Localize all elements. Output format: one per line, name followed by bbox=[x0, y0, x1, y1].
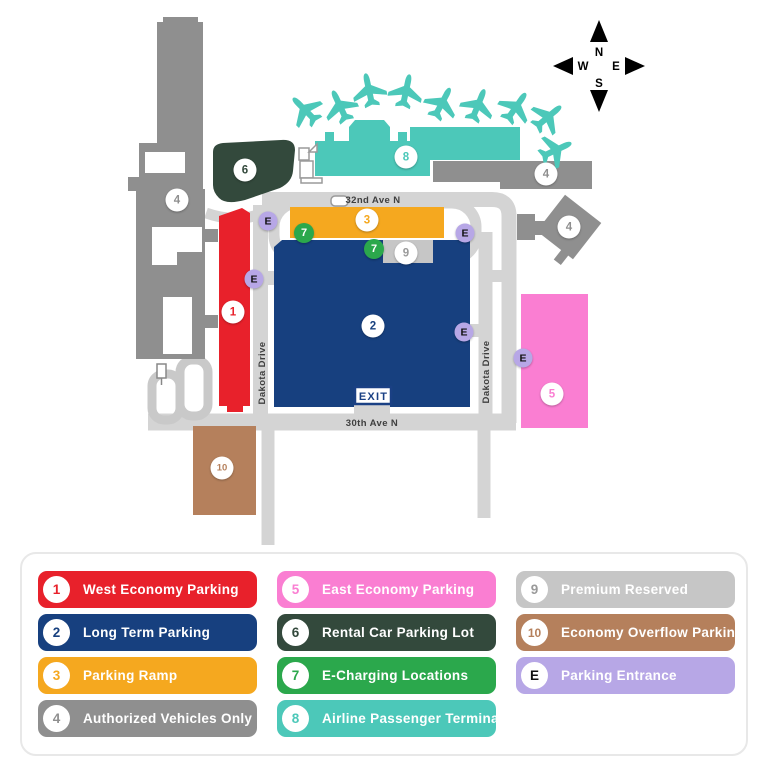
legend-badge-e: E bbox=[521, 662, 548, 689]
compass-south-arrow bbox=[590, 90, 608, 112]
airplane-icon bbox=[456, 83, 500, 127]
west-building-cutout-1 bbox=[145, 152, 185, 173]
premium-reserved-lot bbox=[383, 240, 433, 263]
legend-badge-8: 8 bbox=[282, 705, 309, 732]
legend-item-e-charging-locations[interactable]: 7E-Charging Locations bbox=[277, 657, 496, 694]
airport-parking-map-page: N S W E 32nd Ave N 30th Ave N Dakota Dri… bbox=[0, 0, 768, 768]
legend-item-premium-reserved[interactable]: 9Premium Reserved bbox=[516, 571, 735, 608]
legend-column: 1West Economy Parking2Long Term Parking3… bbox=[38, 571, 257, 754]
legend-label-airline-passenger-terminal: Airline Passenger Terminal bbox=[322, 711, 503, 726]
legend-label-long-term-parking: Long Term Parking bbox=[83, 625, 210, 640]
legend-label-e-charging-locations: E-Charging Locations bbox=[322, 668, 468, 683]
legend-item-parking-entrance[interactable]: EParking Entrance bbox=[516, 657, 735, 694]
legend-label-rental-car-parking-lot: Rental Car Parking Lot bbox=[322, 625, 474, 640]
economy-overflow-lot bbox=[193, 426, 256, 515]
legend-label-premium-reserved: Premium Reserved bbox=[561, 582, 688, 597]
parking-ramp-lot bbox=[290, 207, 444, 238]
legend-label-economy-overflow-parking: Economy Overflow Parking bbox=[561, 625, 744, 640]
west-building-cutout-3 bbox=[152, 252, 177, 265]
compass-west-arrow bbox=[553, 57, 573, 75]
long-term-lot bbox=[274, 240, 470, 407]
airplane-icon bbox=[281, 86, 329, 134]
legend-columns: 1West Economy Parking2Long Term Parking3… bbox=[38, 571, 735, 754]
airplane-icon bbox=[419, 80, 465, 126]
legend-item-rental-car-parking-lot[interactable]: 6Rental Car Parking Lot bbox=[277, 614, 496, 651]
legend-badge-5: 5 bbox=[282, 576, 309, 603]
exit-driveway bbox=[354, 404, 390, 416]
legend-item-economy-overflow-parking[interactable]: 10Economy Overflow Parking bbox=[516, 614, 735, 651]
authorized-facility bbox=[529, 195, 601, 269]
legend-badge-2: 2 bbox=[43, 619, 70, 646]
west-building-bridge-2 bbox=[202, 315, 218, 328]
legend-badge-10: 10 bbox=[521, 619, 548, 646]
compass-e-label: E bbox=[612, 61, 620, 73]
legend-badge-3: 3 bbox=[43, 662, 70, 689]
control-tower bbox=[157, 22, 203, 143]
service-structure-2 bbox=[300, 161, 313, 178]
authorized-strip-lower bbox=[500, 182, 592, 189]
legend-column: 5East Economy Parking6Rental Car Parking… bbox=[277, 571, 496, 754]
service-structure-flag bbox=[309, 144, 317, 152]
legend-column: 9Premium Reserved10Economy Overflow Park… bbox=[516, 571, 735, 754]
compass-north-arrow bbox=[590, 20, 608, 42]
airplane-icon bbox=[524, 93, 572, 141]
map-area: N S W E 32nd Ave N 30th Ave N Dakota Dri… bbox=[0, 0, 768, 552]
legend-label-authorized-vehicles-only: Authorized Vehicles Only bbox=[83, 711, 252, 726]
street-label-dakota-west: Dakota Drive bbox=[257, 342, 268, 405]
exit-sign: EXIT bbox=[355, 387, 391, 404]
legend-item-east-economy-parking[interactable]: 5East Economy Parking bbox=[277, 571, 496, 608]
legend-label-west-economy-parking: West Economy Parking bbox=[83, 582, 239, 597]
compass-rose: N S W E bbox=[553, 20, 645, 112]
legend-badge-9: 9 bbox=[521, 576, 548, 603]
service-structure-1 bbox=[299, 148, 309, 160]
terminal-rotunda bbox=[349, 120, 390, 141]
legend-badge-1: 1 bbox=[43, 576, 70, 603]
legend-label-parking-ramp: Parking Ramp bbox=[83, 668, 177, 683]
west-economy-lot bbox=[219, 208, 250, 412]
terminal-east-wing bbox=[410, 127, 520, 160]
west-building-arm bbox=[128, 177, 141, 191]
legend-badge-6: 6 bbox=[282, 619, 309, 646]
west-building-cutout-4 bbox=[163, 297, 192, 354]
compass-s-label: S bbox=[595, 78, 603, 90]
street-label-dakota-east: Dakota Drive bbox=[481, 341, 492, 404]
legend-label-east-economy-parking: East Economy Parking bbox=[322, 582, 474, 597]
legend-item-west-economy-parking[interactable]: 1West Economy Parking bbox=[38, 571, 257, 608]
terminal-tab-right bbox=[398, 132, 407, 141]
exit-sign-label: EXIT bbox=[359, 391, 388, 403]
legend-badge-4: 4 bbox=[43, 705, 70, 732]
service-structure-3 bbox=[301, 178, 322, 183]
east-economy-lot bbox=[521, 294, 588, 428]
legend-item-parking-ramp[interactable]: 3Parking Ramp bbox=[38, 657, 257, 694]
legend-item-airline-passenger-terminal[interactable]: 8Airline Passenger Terminal bbox=[277, 700, 496, 737]
legend-item-authorized-vehicles-only[interactable]: 4Authorized Vehicles Only bbox=[38, 700, 257, 737]
legend-label-parking-entrance: Parking Entrance bbox=[561, 668, 677, 683]
sign-post-icon bbox=[157, 364, 166, 385]
compass-n-label: N bbox=[595, 47, 603, 59]
airplane-icon bbox=[386, 71, 426, 111]
road-entrance-west bbox=[250, 271, 276, 285]
compass-w-label: W bbox=[578, 61, 589, 73]
authorized-strip bbox=[433, 161, 592, 182]
west-building-cutout-2 bbox=[152, 227, 202, 252]
legend-panel: 1West Economy Parking2Long Term Parking3… bbox=[20, 552, 748, 756]
compass-east-arrow bbox=[625, 57, 645, 75]
legend-badge-7: 7 bbox=[282, 662, 309, 689]
terminal-tab-left bbox=[325, 132, 334, 141]
map-svg: N S W E 32nd Ave N 30th Ave N Dakota Dri… bbox=[0, 0, 768, 552]
west-building-bridge-1 bbox=[202, 229, 218, 242]
road-loop-b bbox=[152, 374, 180, 420]
legend-item-long-term-parking[interactable]: 2Long Term Parking bbox=[38, 614, 257, 651]
street-label-30th-ave: 30th Ave N bbox=[346, 418, 398, 429]
street-label-32nd-ave: 32nd Ave N bbox=[345, 195, 400, 206]
authorized-facility-block bbox=[517, 214, 535, 240]
